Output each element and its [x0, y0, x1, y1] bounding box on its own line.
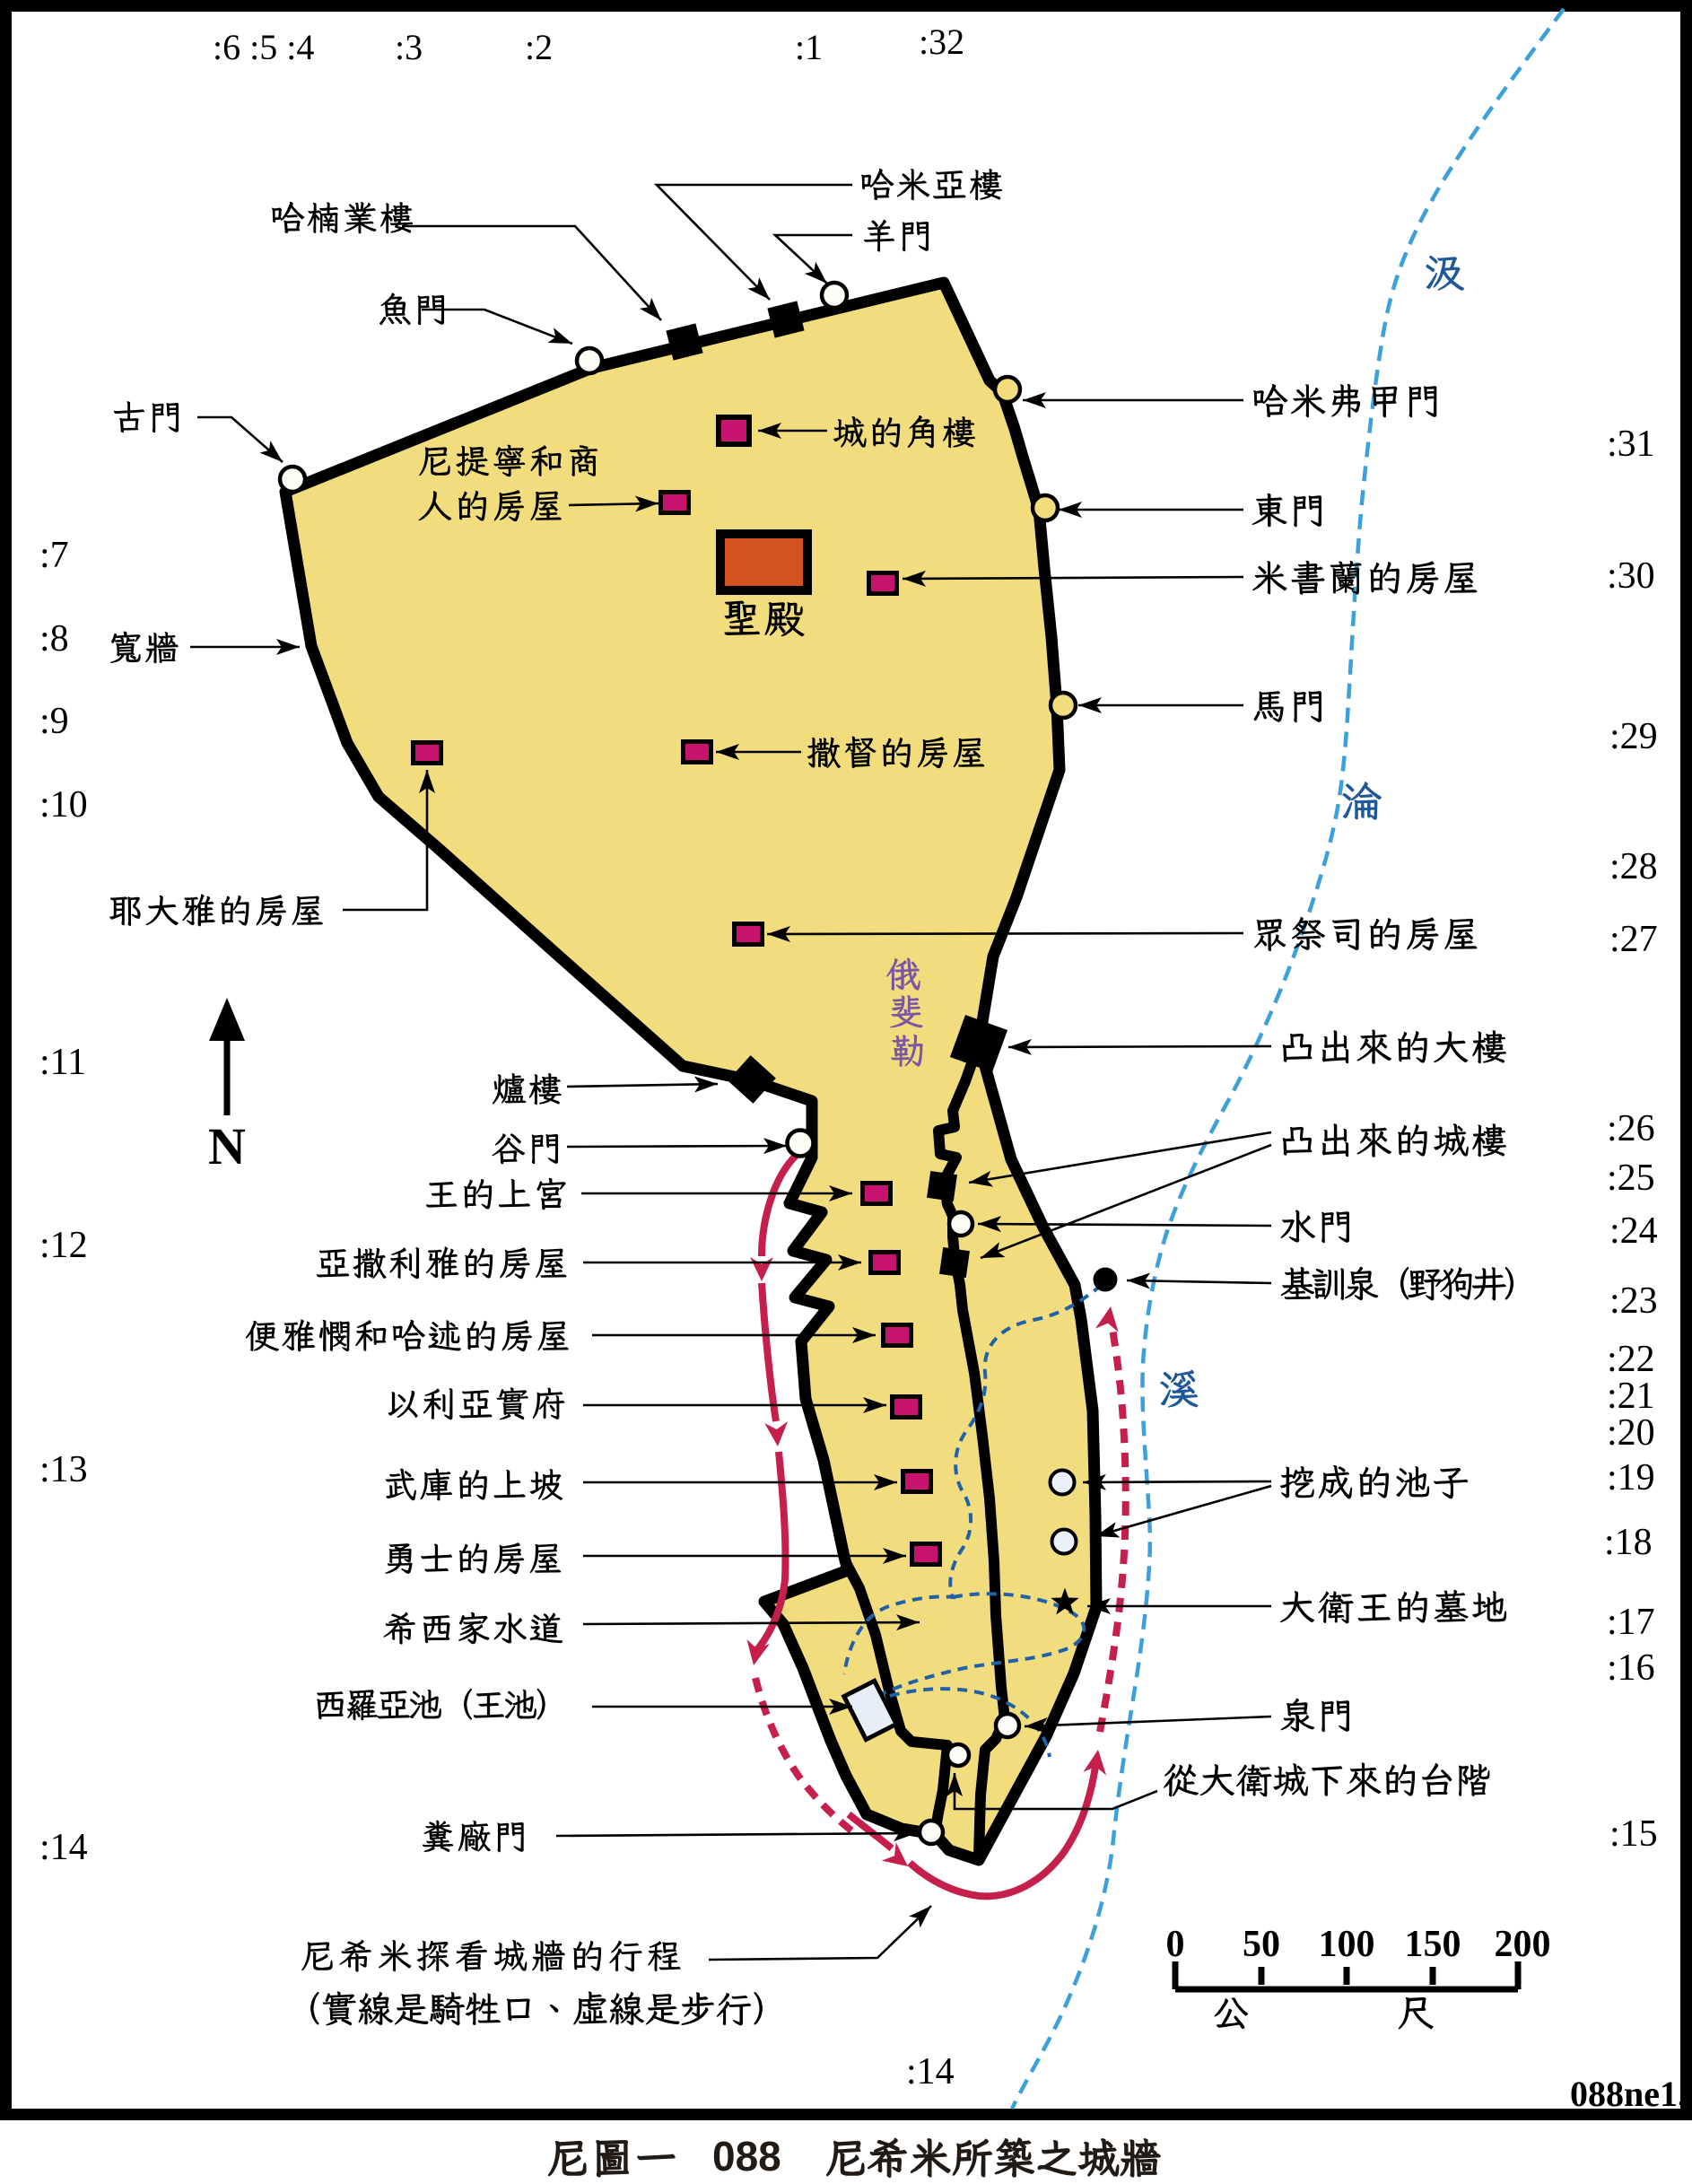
- svg-text::29: :29: [1609, 716, 1658, 757]
- svg-text::23: :23: [1609, 1280, 1658, 1322]
- svg-text:200: 200: [1495, 1924, 1551, 1965]
- svg-text::24: :24: [1609, 1210, 1658, 1252]
- svg-text::28: :28: [1609, 846, 1658, 887]
- svg-text::25: :25: [1607, 1158, 1655, 1199]
- svg-text::6 :5 :4: :6 :5 :4: [213, 27, 314, 67]
- svg-text:50: 50: [1243, 1924, 1280, 1965]
- svg-text::11: :11: [39, 1042, 86, 1083]
- svg-text::15: :15: [1609, 1813, 1658, 1855]
- svg-text:088ne1.: 088ne1.: [1570, 2074, 1687, 2114]
- svg-text::19: :19: [1607, 1457, 1655, 1498]
- svg-text::3: :3: [395, 27, 423, 67]
- svg-text::7: :7: [39, 535, 69, 576]
- svg-text::22: :22: [1607, 1339, 1655, 1380]
- svg-text::9: :9: [39, 701, 69, 742]
- svg-text::16: :16: [1607, 1647, 1655, 1689]
- svg-text::2: :2: [525, 27, 553, 67]
- svg-text:150: 150: [1405, 1924, 1461, 1965]
- svg-text::14: :14: [39, 1827, 88, 1868]
- svg-text:100: 100: [1319, 1924, 1375, 1965]
- svg-text::27: :27: [1609, 919, 1658, 960]
- svg-text::31: :31: [1607, 424, 1655, 465]
- svg-text::30: :30: [1607, 555, 1655, 597]
- svg-text::12: :12: [39, 1225, 88, 1266]
- svg-text:0: 0: [1166, 1924, 1185, 1965]
- svg-text::10: :10: [39, 784, 88, 826]
- svg-text::32: :32: [919, 22, 964, 62]
- svg-text:088: 088: [712, 2133, 781, 2180]
- svg-text::8: :8: [39, 618, 69, 660]
- svg-text::21: :21: [1607, 1376, 1655, 1417]
- svg-text::20: :20: [1607, 1412, 1655, 1454]
- svg-text::18: :18: [1604, 1522, 1653, 1563]
- svg-text:N: N: [208, 1117, 246, 1175]
- svg-text::17: :17: [1607, 1602, 1655, 1643]
- svg-text::14: :14: [906, 2051, 955, 2092]
- svg-text::13: :13: [39, 1449, 88, 1490]
- svg-text::1: :1: [795, 27, 823, 67]
- svg-text::26: :26: [1607, 1108, 1655, 1149]
